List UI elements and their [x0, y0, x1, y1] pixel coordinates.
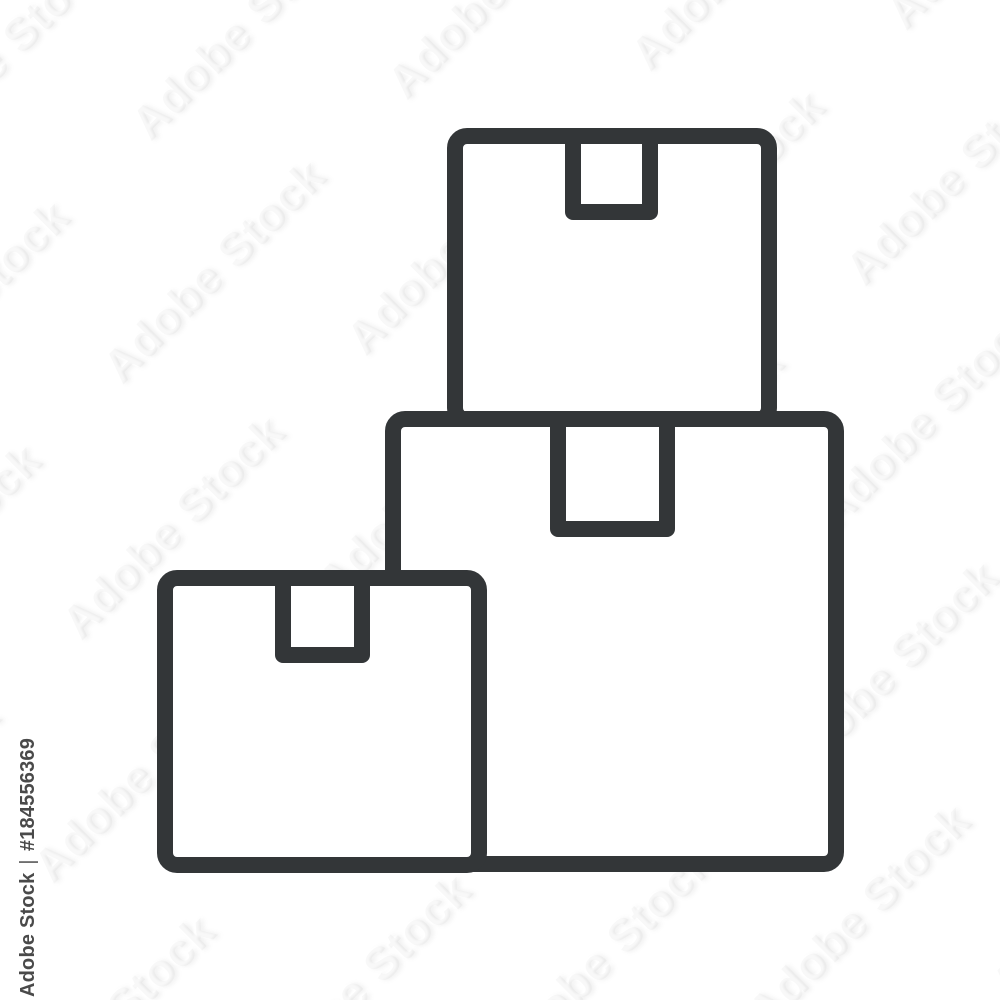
stock-image-preview: Adobe StockAdobe StockAdobe StockAdobe S…: [0, 0, 1000, 1000]
stacked-boxes-icon: [0, 0, 1000, 1000]
top-box: [455, 136, 769, 420]
attribution-brand: Adobe Stock: [17, 873, 39, 997]
attribution-separator: |: [17, 859, 40, 864]
attribution-asset-id: #184556369: [17, 738, 39, 851]
small-box: [165, 578, 479, 865]
watermark-attribution: Adobe Stock|#184556369: [17, 738, 40, 997]
boxes-icon-strokes: [165, 131, 836, 865]
